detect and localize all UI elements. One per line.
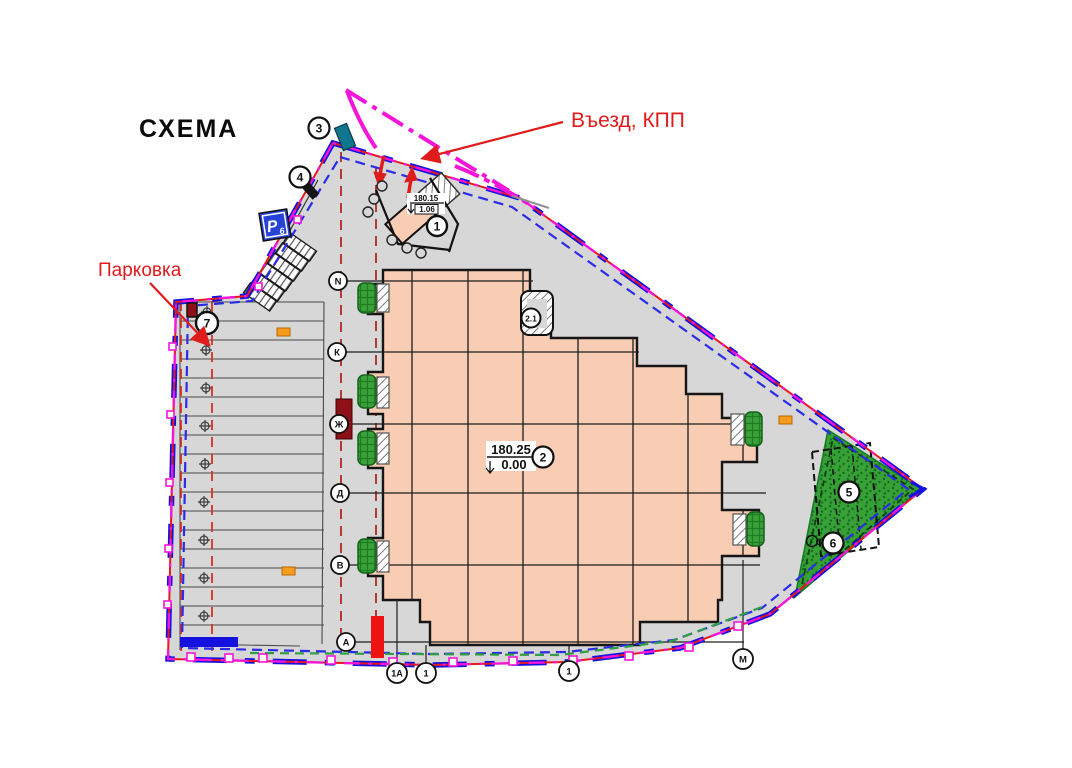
page-title: СХЕМА (139, 115, 238, 143)
callout-1: 1 (427, 216, 447, 236)
callout-4: 4 (290, 167, 311, 188)
axis-row-zh: Ж (334, 420, 344, 431)
svg-text:1: 1 (434, 220, 441, 234)
small-red-icon (187, 303, 197, 317)
main-elevation-label: 180.25 0.00 (486, 441, 536, 473)
main-elevation-top: 180.25 (491, 442, 531, 457)
axis-row-v: В (337, 561, 344, 572)
axis-row-d: Д (337, 489, 344, 500)
axis-col-1: 1 (423, 669, 429, 680)
red-structure (371, 616, 384, 658)
svg-text:2.1: 2.1 (525, 314, 537, 324)
svg-text:3: 3 (316, 122, 323, 136)
callout-6: 6 (823, 533, 844, 554)
svg-text:2: 2 (540, 451, 547, 465)
main-elevation-bottom: 0.00 (501, 457, 526, 472)
parking-sign: Р 6 (259, 209, 291, 241)
sports-letter: С (816, 537, 823, 547)
parking-annotation: Парковка (98, 260, 182, 281)
callout-7: 7 (196, 312, 218, 334)
axis-col-1a: 1А (391, 669, 403, 679)
axis-row-k: К (334, 348, 340, 359)
kpp-elevation-label: 180.15 1.06 (407, 193, 445, 214)
blue-bar (180, 637, 238, 647)
kpp-elevation-top: 180.15 (414, 194, 439, 203)
callout-2-1: 2.1 (522, 309, 541, 328)
axis-row-a: А (343, 638, 350, 649)
svg-text:7: 7 (204, 317, 211, 331)
svg-text:5: 5 (846, 486, 853, 500)
site-plan-page: 180.15 1.06 180.25 0.00 Р 6 N (0, 0, 1072, 768)
kpp-elevation-bottom: 1.06 (419, 205, 435, 214)
axis-col-m: М (739, 655, 747, 666)
callout-3: 3 (309, 118, 330, 139)
svg-text:4: 4 (297, 171, 304, 185)
entrance-annotation: Въезд, КПП (571, 109, 685, 132)
axis-row-n: N (335, 277, 342, 288)
callout-2: 2 (533, 447, 554, 468)
site-plan-drawing: 180.15 1.06 180.25 0.00 Р 6 N (0, 0, 1072, 768)
callout-5: 5 (839, 482, 860, 503)
axis-col-1b: 1 (566, 667, 572, 678)
entrance-arrow (424, 122, 563, 158)
svg-text:6: 6 (830, 537, 837, 551)
